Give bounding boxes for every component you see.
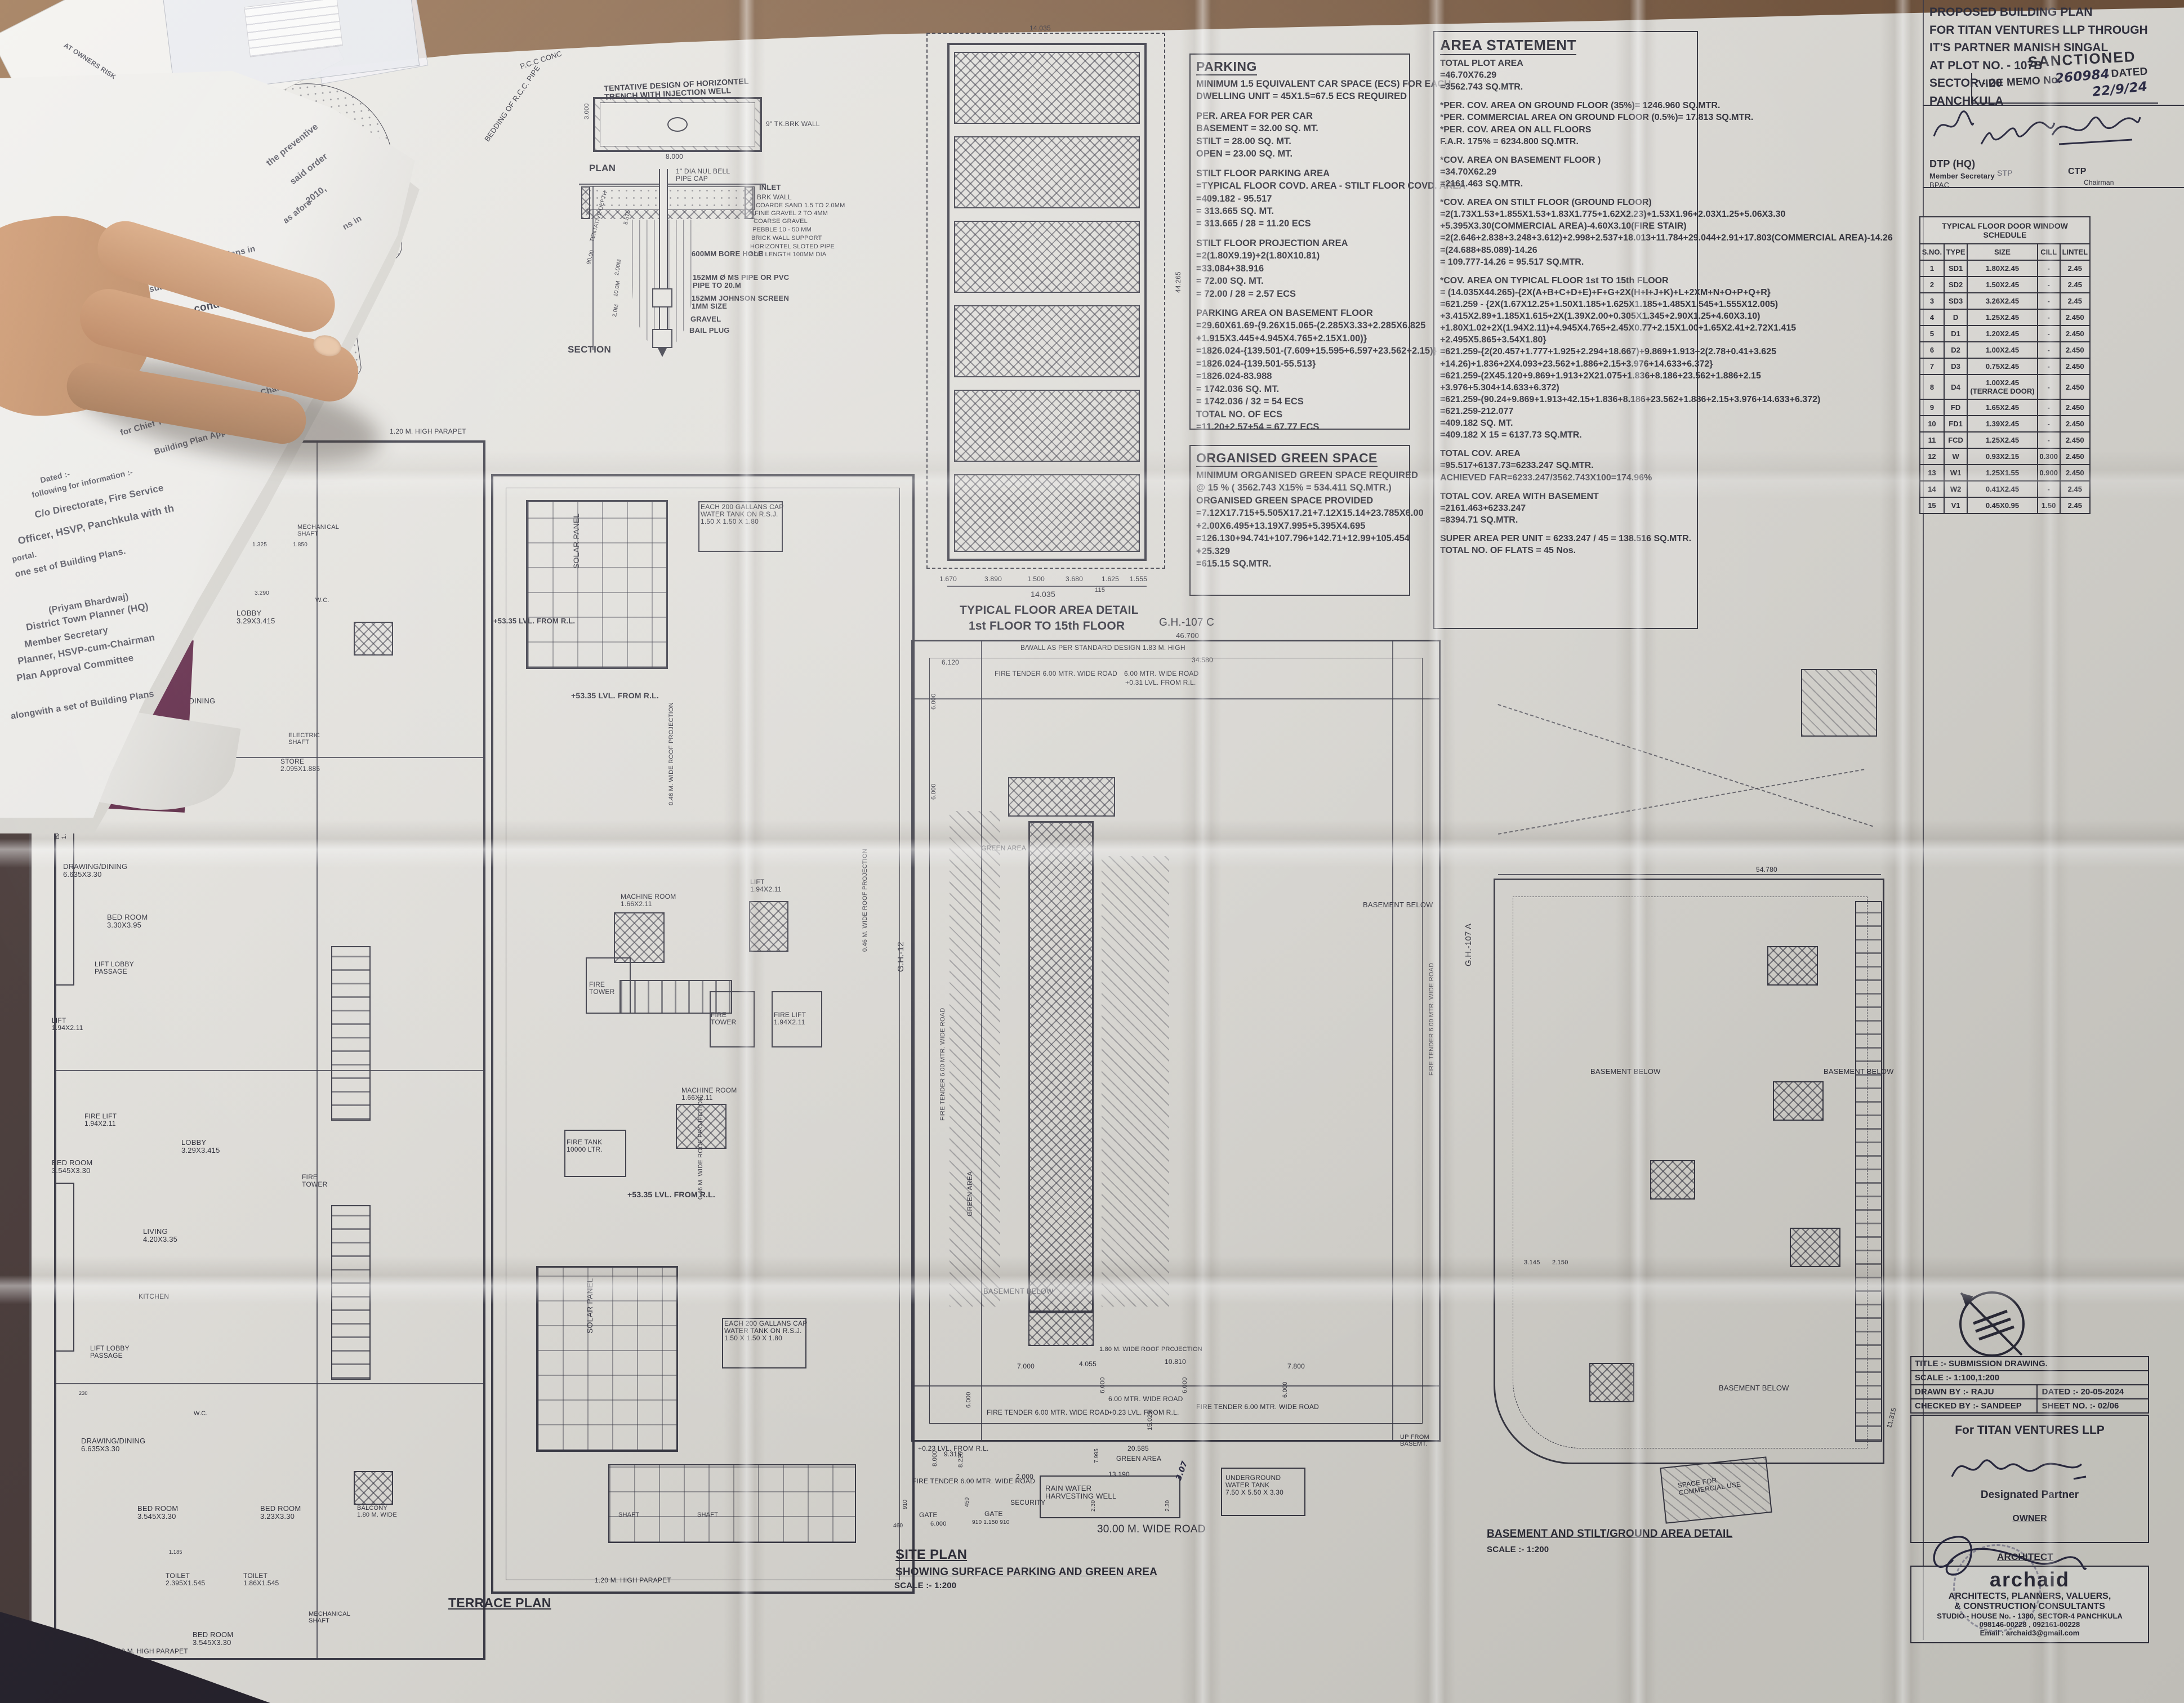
balcony-strip-1 xyxy=(54,817,74,986)
schedule-sno: 6 xyxy=(1920,342,1944,358)
plan-label: COARDE SAND 1.5 TO 2.0MM xyxy=(756,202,845,209)
lift-box xyxy=(749,901,788,952)
schedule-size: 1.65X2.45 xyxy=(1967,399,2037,416)
plan-label: 1.670 xyxy=(939,576,957,583)
area-statement-line: +2.495X5.865+3.54X1.80} xyxy=(1440,334,1691,346)
plan-label: 6.00 MTR. WIDE ROAD xyxy=(1124,670,1198,677)
green-space-line: @ 15 % ( 3562.743 X15% = 534.411 SQ.MTR.… xyxy=(1196,482,1403,494)
schedule-row: 8 D4 1.00X2.45 (TERRACE DOOR) - 2.450 xyxy=(1920,375,2090,399)
tower-pad-bottom xyxy=(1028,1312,1094,1346)
area-statement-line: =34.70X62.29 xyxy=(1440,166,1691,178)
plan-label: FIRE TENDER 6.00 MTR. WIDE ROAD xyxy=(995,670,1117,677)
north-arrow-icon xyxy=(1944,1276,2034,1366)
plan-label: FIRE TENDER 6.00 MTR. WIDE ROAD xyxy=(1196,1403,1319,1411)
schedule-column-header: SIZE xyxy=(1967,244,2037,260)
schedule-size: 0.45X0.95 xyxy=(1967,497,2037,514)
plan-label: UNDERGROUND WATER TANK 7.50 X 5.50 X 3.3… xyxy=(1225,1474,1283,1497)
plan-label: TERRACE PLAN xyxy=(448,1596,551,1610)
architect-header: ARCHITECT xyxy=(1997,1552,2053,1563)
area-statement-line: =(24.688+85.089)-14.26 xyxy=(1440,244,1691,256)
area-statement-line: +5.395X3.30(COMMERCIAL AREA)-4.60X3.10(F… xyxy=(1440,220,1691,232)
parking-line: MINIMUM 1.5 EQUIVALENT CAR SPACE (ECS) F… xyxy=(1196,78,1403,90)
plan-label: BAIL PLUG xyxy=(689,327,730,335)
schedule-lintel: 2.450 xyxy=(2060,399,2090,416)
plan-label: BED ROOM 3.545X3.30 xyxy=(137,1505,178,1521)
parking-line: STILT FLOOR PARKING AREA xyxy=(1196,167,1403,180)
left-plan-core-1 xyxy=(354,622,393,656)
plan-label: BED ROOM 3.545X3.30 xyxy=(52,1159,92,1175)
green-space-title: ORGANISED GREEN SPACE xyxy=(1196,451,1378,467)
area-statement-line: =621.259 - {2X(1.67X12.25+1.50X1.185+1.6… xyxy=(1440,298,1691,310)
schedule-lintel: 2.450 xyxy=(2060,465,2090,481)
plan-label: SECTION xyxy=(568,345,611,355)
area-statement-line xyxy=(1440,268,1691,275)
green-space-line: =615.15 SQ.MTR. xyxy=(1196,558,1403,570)
plan-label: BASEMENT BELOW xyxy=(1719,1384,1789,1392)
plan-label: 1.20 M. HIGH PARAPET xyxy=(390,428,466,435)
info-drawn-by: DRAWN BY :- RAJU xyxy=(1911,1385,2038,1398)
plan-label: TYPICAL FLOOR AREA DETAIL xyxy=(960,604,1139,617)
plan-label: +0.23 LVL. FROM R.L. xyxy=(1108,1409,1179,1416)
plan-label: 0.46 M. WIDE ROOF PROJECTION xyxy=(668,702,675,805)
schedule-lintel: 2.45 xyxy=(2060,293,2090,309)
schedule-cill: - xyxy=(2038,481,2060,497)
parking-line: =1826.024-{139.501-55.513} xyxy=(1196,358,1403,370)
area-statement-line: = 109.777-14.26 = 95.517 SQ.MTR. xyxy=(1440,256,1691,268)
architect-line-4: 098146-00228 , 092161-00228 xyxy=(1911,1620,2148,1629)
parking-line: = 1742.036 / 32 = 54 ECS xyxy=(1196,395,1403,408)
schedule-sno: 14 xyxy=(1920,481,1944,497)
schedule-cill: - xyxy=(2038,326,2060,342)
plan-label: SCALE :- 1:200 xyxy=(894,1581,956,1591)
depth-dim-line xyxy=(592,186,594,350)
partner-signature xyxy=(1944,1442,2091,1492)
plan-label: SITE PLAN xyxy=(895,1548,967,1562)
plan-label: 2.000 xyxy=(1016,1473,1033,1481)
parking-line: TOTAL NO. OF ECS xyxy=(1196,408,1403,421)
typ-cell-4 xyxy=(954,305,1140,377)
area-statement-line: ACHIEVED FAR=6233.247/3562.743X100=174.9… xyxy=(1440,472,1691,484)
parking-line: =TYPICAL FLOOR COVD. AREA - STILT FLOOR … xyxy=(1196,180,1403,192)
architect-line-5: Email : archaid3@gmail.com xyxy=(1911,1629,2148,1637)
area-statement-line: +14.26)+1.836+2X4.093+23.562+1.886+2.15+… xyxy=(1440,358,1691,370)
plan-label: 1.20 M. HIGH PARAPET xyxy=(595,1577,671,1584)
green-space-lines: MINIMUM ORGANISED GREEN SPACE REQUIRED@ … xyxy=(1196,469,1403,570)
schedule-row: 2 SD2 1.50X2.45 - 2.45 xyxy=(1920,277,2090,293)
tower-footprint xyxy=(1028,821,1094,1312)
typ-cell-6 xyxy=(954,474,1140,552)
parking-line: +1.915X3.445+4.945X4.765+2.15X1.00)} xyxy=(1196,332,1403,345)
parking-line: = 1742.036 SQ. MT. xyxy=(1196,383,1403,395)
basement-core-5 xyxy=(1589,1363,1634,1402)
area-statement-line: SUPER AREA PER UNIT = 6233.247 / 45 = 13… xyxy=(1440,533,1691,545)
plan-label: LIFT 1.94X2.11 xyxy=(52,1017,83,1032)
schedule-lintel: 2.450 xyxy=(2060,432,2090,448)
schedule-cill: - xyxy=(2038,358,2060,375)
plan-label: 6.00 MTR. WIDE ROAD xyxy=(1108,1396,1183,1403)
plan-label: 1.185 xyxy=(169,1550,182,1555)
tower-pad-top xyxy=(1008,777,1115,817)
schedule-size: 0.75X2.45 xyxy=(1967,358,2037,375)
parking-line: OPEN = 23.00 SQ. MT. xyxy=(1196,148,1403,160)
plan-label: 8.000 xyxy=(666,153,683,161)
plan-label: MACHINE ROOM 1.66X2.11 xyxy=(621,893,676,908)
plan-label: BALCONY 1.80 M. WIDE xyxy=(357,1505,397,1518)
schedule-size: 1.50X2.45 xyxy=(1967,277,2037,293)
schedule-sno: 9 xyxy=(1920,399,1944,416)
schedule-column-header: S.NO. xyxy=(1920,244,1944,260)
plan-label: FIRE TOWER xyxy=(302,1174,327,1188)
plan-label: 6.000 xyxy=(930,1521,947,1527)
schedule-cill: - xyxy=(2038,416,2060,432)
schedule-cill: - xyxy=(2038,293,2060,309)
schedule-cill: - xyxy=(2038,342,2060,358)
left-plan-spine-wall xyxy=(317,440,318,1660)
plan-label: +53.35 LVL. FROM R.L. xyxy=(571,692,659,700)
ctp-signature xyxy=(2048,107,2143,152)
plan-label: FIRE LIFT 1.94X2.11 xyxy=(84,1113,117,1127)
left-plan-core-2 xyxy=(354,1471,393,1505)
schedule-type: V1 xyxy=(1944,497,1967,514)
plan-label: 2.150 xyxy=(1552,1259,1568,1266)
schedule-row: 10 FD1 1.39X2.45 - 2.450 xyxy=(1920,416,2090,432)
parking-line: =2(1.80X9.19)+2(1.80X10.81) xyxy=(1196,249,1403,262)
plan-label: RAIN WATER HARVESTING WELL xyxy=(1045,1484,1116,1501)
ms-pipe xyxy=(659,169,668,344)
ground-line xyxy=(579,184,766,185)
plan-label: COARSE GRAVEL xyxy=(754,218,808,225)
ctp-label: CTP xyxy=(2068,167,2087,177)
plan-label: 3.290 xyxy=(255,590,269,596)
schedule-lintel: 2.450 xyxy=(2060,309,2090,326)
parking-line: STILT FLOOR PROJECTION AREA xyxy=(1196,237,1403,249)
plan-label: 115 xyxy=(1095,587,1105,594)
well-ellipse xyxy=(667,117,688,132)
plan-label: GATE xyxy=(984,1510,1003,1518)
schedule-sno: 15 xyxy=(1920,497,1944,514)
left-plan-stair-1 xyxy=(331,946,371,1121)
typ-dim-line xyxy=(947,586,1147,587)
schedule-lintel: 2.450 xyxy=(2060,342,2090,358)
plan-label: BASEMENT BELOW xyxy=(1590,1068,1661,1076)
plan-label: +53.35 LVL. FROM R.L. xyxy=(493,617,575,625)
parking-line: PARKING AREA ON BASEMENT FLOOR xyxy=(1196,307,1403,319)
plan-label: FIRE TANK 10000 LTR. xyxy=(567,1139,603,1153)
schedule-type: D3 xyxy=(1944,358,1967,375)
schedule-size: 1.25X2.45 xyxy=(1967,432,2037,448)
plan-label: TOILET 1.86X1.545 xyxy=(243,1572,279,1587)
parking-line: DWELLING UNIT = 45X1.5=67.5 ECS REQUIRED xyxy=(1196,90,1403,102)
info-scale: SCALE :- 1:100,1:200 xyxy=(1915,1373,1999,1383)
basement-top-dim xyxy=(1498,874,1881,875)
plan-label: BED ROOM 3.545X3.30 xyxy=(193,1631,233,1647)
schedule-size: 1.20X2.45 xyxy=(1967,326,2037,342)
plan-label: 3.680 xyxy=(1066,576,1083,583)
area-statement-line xyxy=(1440,190,1691,197)
schedule-type: SD3 xyxy=(1944,293,1967,309)
plan-label: BED ROOM 3.30X3.95 xyxy=(107,913,148,930)
schedule-column-header: TYPE xyxy=(1944,244,1967,260)
plan-label: SOLAR PANEL xyxy=(572,514,581,569)
schedule-sno: 2 xyxy=(1920,277,1944,293)
area-statement-line: =621.259-212.077 xyxy=(1440,405,1691,417)
road-line-top xyxy=(911,698,1441,699)
plan-label: 6.000 xyxy=(1182,1377,1188,1393)
plan-label: 910 xyxy=(902,1500,908,1509)
parking-line: =33.084+38.916 xyxy=(1196,262,1403,275)
schedule-type: W xyxy=(1944,448,1967,465)
area-statement-line: *COV. AREA ON TYPICAL FLOOR 1st TO 15th … xyxy=(1440,275,1691,287)
area-statement-line: TOTAL NO. OF FLATS = 45 Nos. xyxy=(1440,545,1691,556)
chairman-label: Chairman xyxy=(2084,179,2114,186)
plan-label: EACH 200 GALLANS CAP WATER TANK ON R.S.J… xyxy=(724,1320,807,1343)
plan-label: BASEMENT BELOW xyxy=(983,1287,1054,1295)
plan-label: 7.000 xyxy=(1017,1363,1035,1370)
parking-title: PARKING xyxy=(1196,59,1257,75)
terrace-room-strip xyxy=(608,1464,856,1543)
balcony-strip-2 xyxy=(54,1183,74,1352)
area-statement-line: =95.517+6137.73=6233.247 SQ.MTR. xyxy=(1440,460,1691,471)
area-statement-line: TOTAL COV. AREA xyxy=(1440,448,1691,460)
schedule-size: 1.00X2.45 (TERRACE DOOR) xyxy=(1967,375,2037,399)
parking-statement-box: PARKING MINIMUM 1.5 EQUIVALENT CAR SPACE… xyxy=(1189,54,1410,430)
plan-label: 7.800 xyxy=(1287,1363,1305,1370)
area-statement-line: *COV. AREA ON STILT FLOOR (GROUND FLOOR) xyxy=(1440,197,1691,208)
plan-label: DRAWING/DINING 6.635X3.30 xyxy=(81,1437,145,1454)
plan-label: LIFT LOBBY PASSAGE xyxy=(95,961,134,975)
basement-core-3 xyxy=(1790,1228,1840,1267)
plan-label: ELECTRIC SHAFT xyxy=(288,732,320,746)
road-line-left xyxy=(981,640,982,1442)
plan-label: GREEN AREA xyxy=(1116,1455,1161,1463)
parking-line: =11.20+2.57+54 = 67.77 ECS xyxy=(1196,421,1403,433)
basement-core-4 xyxy=(1650,1160,1695,1200)
plan-label: 46.700 xyxy=(1176,632,1199,640)
schedule-cill: - xyxy=(2038,260,2060,277)
schedule-sno: 7 xyxy=(1920,358,1944,375)
typ-cell-5 xyxy=(954,390,1140,462)
area-statement-line: TOTAL PLOT AREA xyxy=(1440,57,1691,69)
area-statement-line: =2(1.73X1.53+1.855X1.53+1.83X1.775+1.62X… xyxy=(1440,208,1691,220)
plan-label: INLET xyxy=(759,184,781,191)
plan-label: 450 xyxy=(964,1497,970,1507)
plan-label: 0.46 M. WIDE ROOF PROJECTION xyxy=(697,1096,704,1200)
solar-panel-array-lower xyxy=(536,1266,678,1452)
schedule-lintel: 2.450 xyxy=(2060,416,2090,432)
area-statement-line: +1.80X1.02+2X(1.94X2.11)+4.945X4.765+2.4… xyxy=(1440,322,1691,334)
plan-label: SHAFT xyxy=(618,1512,639,1518)
plan-label: MECHANICAL SHAFT xyxy=(309,1611,350,1624)
plan-label: 10.810 xyxy=(1165,1358,1186,1366)
schedule-cill: 0.300 xyxy=(2038,448,2060,465)
schedule-row: 15 V1 0.45X0.95 1.50 2.45 xyxy=(1920,497,2090,514)
schedule-row: 6 D2 1.00X2.45 - 2.450 xyxy=(1920,342,2090,358)
plan-label: 6.000 xyxy=(1282,1381,1289,1398)
area-statement-line xyxy=(1440,148,1691,154)
plan-label: 14.035 xyxy=(1031,590,1055,599)
area-statement-line xyxy=(1440,441,1691,448)
plan-label: 1.500 xyxy=(1027,576,1045,583)
bpac-label: BPAC xyxy=(1929,181,1949,189)
plan-label: LOBBY 3.29X3.415 xyxy=(181,1139,220,1155)
plan-label: 152MM Ø MS PIPE OR PVC PIPE TO 20.M xyxy=(693,274,789,290)
left-plan-wall-2 xyxy=(54,1070,485,1071)
plan-label: UP FROM BASEMT. xyxy=(1400,1434,1429,1447)
plan-label: LIVING 4.20X3.35 xyxy=(143,1228,177,1244)
area-statement-box: AREA STATEMENT TOTAL PLOT AREA=46.70X76.… xyxy=(1433,31,1698,629)
plan-label: 8.225 xyxy=(957,1451,964,1468)
area-statement-line: *PER. COV. AREA ON GROUND FLOOR (35%)= 1… xyxy=(1440,100,1691,112)
green-space-line: =7.12X17.715+5.505X17.21+7.12X15.14+23.7… xyxy=(1196,507,1403,519)
pebble-layer xyxy=(586,210,755,219)
area-statement-line xyxy=(1440,484,1691,491)
green-space-line: MINIMUM ORGANISED GREEN SPACE REQUIRED xyxy=(1196,469,1403,482)
plan-label: FIRE TOWER xyxy=(711,1011,736,1026)
plan-label: BED ROOM 3.23X3.30 xyxy=(260,1505,301,1521)
plan-label: 54.780 xyxy=(1756,866,1777,873)
plan-label: STORE 2.095X1.885 xyxy=(280,758,320,773)
plan-label: 910 1.150 910 xyxy=(972,1519,1010,1526)
brick-wall-left xyxy=(581,186,590,219)
plan-label: SECURITY xyxy=(1010,1499,1045,1506)
road-line-bottom xyxy=(911,1385,1441,1387)
plan-label: 1st FLOOR TO 15th FLOOR xyxy=(969,619,1125,632)
plan-label: 2.30 xyxy=(1090,1500,1097,1512)
schedule-type: FD1 xyxy=(1944,416,1967,432)
plan-label: 44.265 xyxy=(1175,271,1182,293)
area-statement-line: =46.70X76.29 xyxy=(1440,69,1691,81)
parking-line: =1826.024-83.988 xyxy=(1196,370,1403,382)
plan-label: 30.00 M. WIDE ROAD xyxy=(1097,1524,1206,1536)
area-statement-line: =8394.71 SQ.MTR. xyxy=(1440,514,1691,526)
schedule-row: 13 W1 1.25X1.55 0.900 2.450 xyxy=(1920,465,2090,481)
schedule-row: 12 W 0.93X2.15 0.300 2.450 xyxy=(1920,448,2090,465)
plan-label: BRK WALL xyxy=(757,194,792,201)
plan-label: GREEN AREA xyxy=(966,1171,974,1216)
photo-of-sanctioned-building-plan: PARKING MINIMUM 1.5 EQUIVALENT CAR SPACE… xyxy=(0,0,2184,1703)
parking-line: =409.182 - 95.517 xyxy=(1196,193,1403,205)
schedule-size: 1.39X2.45 xyxy=(1967,416,2037,432)
plan-label: 600MM BORE HOLE xyxy=(692,250,763,258)
schedule-type: W2 xyxy=(1944,481,1967,497)
schedule-size: 0.93X2.15 xyxy=(1967,448,2037,465)
schedule-row: 1 SD1 1.80X2.45 - 2.45 xyxy=(1920,260,2090,277)
plan-label: FIRE TENDER 6.00 MTR. WIDE ROAD xyxy=(987,1409,1109,1416)
area-statement-line: =409.182 SQ. MT. xyxy=(1440,417,1691,429)
schedule-type: D xyxy=(1944,309,1967,326)
schedule-type: D2 xyxy=(1944,342,1967,358)
plan-label: 3.000 xyxy=(583,103,590,119)
schedule-lintel: 2.450 xyxy=(2060,326,2090,342)
plan-label: 1.555 xyxy=(1130,576,1147,583)
schedule-row: 9 FD 1.65X2.45 - 2.450 xyxy=(1920,399,2090,416)
plan-label: FIRE TENDER 6.00 MTR. WIDE ROAD xyxy=(939,1008,946,1121)
johnson-screen-lower xyxy=(652,329,672,348)
schedule-sno: 10 xyxy=(1920,416,1944,432)
parking-line: = 313.665 / 28 = 11.20 ECS xyxy=(1196,217,1403,230)
parking-line xyxy=(1196,161,1403,167)
plan-label: 1.625 xyxy=(1102,576,1119,583)
schedule-sno: 1 xyxy=(1920,260,1944,277)
schedule-lintel: 2.450 xyxy=(2060,375,2090,399)
parking-line: BASEMENT = 32.00 SQ. MT. xyxy=(1196,122,1403,135)
basement-core-2 xyxy=(1773,1081,1824,1121)
schedule-type: W1 xyxy=(1944,465,1967,481)
dtp-label: DTP (HQ) xyxy=(1929,159,1975,170)
schedule-type: FD xyxy=(1944,399,1967,416)
schedule-cill: - xyxy=(2038,432,2060,448)
area-statement-line: =409.182 X 15 = 6137.73 SQ.MTR. xyxy=(1440,429,1691,441)
schedule-row: 3 SD3 3.26X2.45 - 2.45 xyxy=(1920,293,2090,309)
schedule-cill: 1.50 xyxy=(2038,497,2060,514)
schedule-lintel: 2.45 xyxy=(2060,260,2090,277)
plan-label: PLAN xyxy=(589,163,616,174)
plan-label: 6.000 xyxy=(965,1392,972,1408)
owner-for-line: For TITAN VENTURES LLP xyxy=(1911,1424,2148,1437)
plan-label: GRAVEL xyxy=(690,315,721,323)
area-statement-title: AREA STATEMENT xyxy=(1440,37,1576,55)
plan-label: 9" TK.BRK WALL xyxy=(766,121,820,128)
parking-lines: MINIMUM 1.5 EQUIVALENT CAR SPACE (ECS) F… xyxy=(1196,78,1403,433)
door-window-schedule: TYPICAL FLOOR DOOR WINDOW SCHEDULE S.NO.… xyxy=(1919,216,2091,514)
area-statement-line: =2161.463+6233.247 xyxy=(1440,502,1691,514)
plan-label: BASEMENT BELOW xyxy=(1363,901,1433,909)
area-statement-line: *PER. COV. AREA ON ALL FLOORS xyxy=(1440,124,1691,136)
info-dated: DATED :- 20-05-2024 xyxy=(2038,1387,2145,1397)
plan-label: BRICK WALL SUPPORT xyxy=(751,235,822,242)
parking-line: =29.60X61.69-{9.26X15.065-(2.285X3.33+2.… xyxy=(1196,319,1403,332)
schedule-title: TYPICAL FLOOR DOOR WINDOW SCHEDULE xyxy=(1919,216,2091,243)
plan-label: TOILET 2.395X1.545 xyxy=(166,1572,205,1587)
schedule-column-header: CILL xyxy=(2038,244,2060,260)
plan-label: 6.000 xyxy=(1099,1377,1106,1393)
parking-line xyxy=(1196,230,1403,237)
schedule-type: SD1 xyxy=(1944,260,1967,277)
parking-line: STILT = 28.00 SQ. MT. xyxy=(1196,135,1403,148)
area-statement-line: F.A.R. 175% = 6234.800 SQ.MTR. xyxy=(1440,136,1691,148)
plan-label: 230 xyxy=(79,1391,88,1397)
plan-label: SHAFT xyxy=(697,1512,718,1518)
plan-label: MACHINE ROOM 1.66X2.11 xyxy=(681,1087,737,1102)
area-statement-line: =2(2.646+2.838+3.248+3.612)+2.998+2.537+… xyxy=(1440,232,1691,244)
plan-label: DRAWING/DINING 6.635X3.30 xyxy=(63,863,127,879)
schedule-sno: 5 xyxy=(1920,326,1944,342)
plan-label: G.H.-107 C xyxy=(1159,617,1214,629)
plan-label: SCALE :- 1:200 xyxy=(1487,1545,1549,1555)
plan-label: +0.31 LVL. FROM R.L. xyxy=(1125,679,1196,686)
johnson-screen-upper xyxy=(652,288,672,307)
schedule-type: FCD xyxy=(1944,432,1967,448)
solar-panel-array-upper xyxy=(526,500,668,669)
schedule-type: D1 xyxy=(1944,326,1967,342)
schedule-cill: 0.900 xyxy=(2038,465,2060,481)
green-space-line: +25.329 xyxy=(1196,545,1403,558)
plan-label: 460 xyxy=(893,1523,903,1529)
plan-label: 6.000 xyxy=(930,783,937,800)
schedule-sno: 8 xyxy=(1920,375,1944,399)
plan-label: LIFT 1.94X2.11 xyxy=(750,879,782,893)
schedule-size: 1.80X2.45 xyxy=(1967,260,2037,277)
parking-line: =1826.024-{139.501-(7.609+15.595+6.597+2… xyxy=(1196,345,1403,357)
area-statement-lines: TOTAL PLOT AREA=46.70X76.29=3562.743 SQ.… xyxy=(1440,57,1691,556)
area-statement-line: =3562.743 SQ.MTR. xyxy=(1440,81,1691,93)
plan-label: 20.585 xyxy=(1127,1445,1149,1452)
plan-label: FIRE TOWER xyxy=(589,981,614,996)
schedule-size: 1.00X2.45 xyxy=(1967,342,2037,358)
schedule-lintel: 2.450 xyxy=(2060,448,2090,465)
plan-label: BASEMENT BELOW xyxy=(1824,1068,1894,1076)
schedule-row: 5 D1 1.20X2.45 - 2.450 xyxy=(1920,326,2090,342)
